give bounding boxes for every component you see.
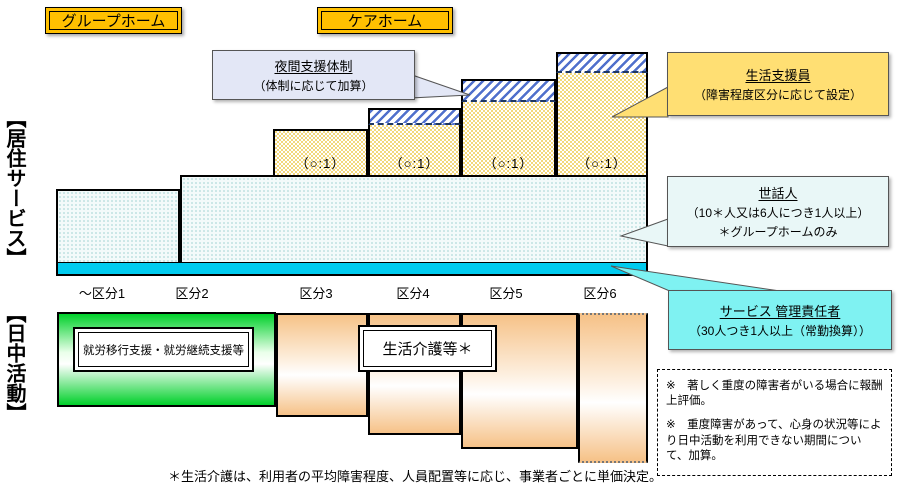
night-support-hatch-kubun4	[368, 108, 461, 125]
employment-support-label: 就労移行支援・就労継続支援等	[78, 332, 249, 367]
night-support-callout: 夜間支援体制 （体制に応じて加算）	[212, 50, 415, 100]
residential-section-label: 【居住サービス】	[4, 108, 24, 280]
service-manager-strip	[58, 262, 646, 274]
care-home-tag: ケアホーム	[317, 7, 453, 34]
life-care-bar-kubun6	[578, 313, 648, 463]
life-care-label-box: 生活介護等＊	[358, 325, 497, 372]
life-support-bar-kubun5: （○:1）	[461, 102, 556, 177]
ratio-label: （○:1）	[463, 153, 554, 172]
life-support-bar-kubun6: （○:1）	[556, 73, 648, 177]
axis-label-kubun6: 区分6	[558, 283, 642, 302]
axis-label-kubun1: ～区分1	[60, 283, 144, 302]
note-unusable-period: ※ 重度障害があって、心身の状況等により日中活動を利用できない期間について、加算…	[666, 418, 883, 464]
caretaker-area	[180, 175, 648, 276]
footnote: ＊生活介護は、利用者の平均障害程度、人員配置等に応じ、事業者ごとに単価決定。	[168, 466, 662, 485]
life-support-bar-kubun4: （○:1）	[368, 125, 461, 177]
life-support-staff-callout: 生活支援員 （障害程度区分に応じて設定）	[667, 52, 889, 116]
axis-label-kubun4: 区分4	[371, 283, 455, 302]
life-care-bar-kubun3	[276, 313, 368, 417]
service-manager-title: サービス 管理責任者	[720, 301, 841, 320]
night-support-body: （体制に応じて加算）	[253, 77, 373, 94]
daytime-section-label: 【日中活動】	[4, 303, 24, 448]
night-support-hatch-kubun6	[556, 52, 648, 73]
life-support-bar-kubun3: （○:1）	[273, 129, 368, 177]
life-support-title: 生活支援員	[745, 65, 810, 84]
life-support-body: （障害程度区分に応じて設定）	[694, 86, 862, 103]
axis-label-kubun3: 区分3	[274, 283, 358, 302]
ratio-label: （○:1）	[275, 153, 366, 172]
notes-box: ※ 著しく重度の障害者がいる場合に報酬上評価。 ※ 重度障害があって、心身の状況…	[657, 369, 892, 476]
ratio-label: （○:1）	[370, 153, 459, 172]
night-support-title: 夜間支援体制	[274, 56, 352, 75]
employment-support-label-box: 就労移行支援・就労継続支援等	[73, 327, 254, 372]
service-manager-body: （30人つき1人以上（常勤換算））	[689, 322, 871, 339]
caretaker-callout: 世話人 （10＊人又は6人につき1人以上） ＊グループホームのみ	[667, 176, 889, 247]
axis-label-kubun2: 区分2	[150, 283, 234, 302]
axis-label-kubun5: 区分5	[464, 283, 548, 302]
group-home-tag: グループホーム	[45, 7, 182, 34]
caretaker-title: 世話人	[758, 183, 797, 202]
service-manager-callout: サービス 管理責任者 （30人つき1人以上（常勤換算））	[668, 290, 892, 350]
life-care-label: 生活介護等＊	[363, 330, 492, 367]
caretaker-note: ＊グループホームのみ	[719, 223, 838, 240]
night-support-hatch-kubun5	[461, 79, 556, 102]
diagram-canvas: グループホーム ケアホーム 【居住サービス】 【日中活動】 （○:1） （○:1…	[0, 0, 907, 488]
caretaker-body: （10＊人又は6人につき1人以上）	[687, 204, 870, 221]
note-severe-disability: ※ 著しく重度の障害者がいる場合に報酬上評価。	[666, 379, 883, 409]
ratio-label: （○:1）	[558, 153, 646, 172]
